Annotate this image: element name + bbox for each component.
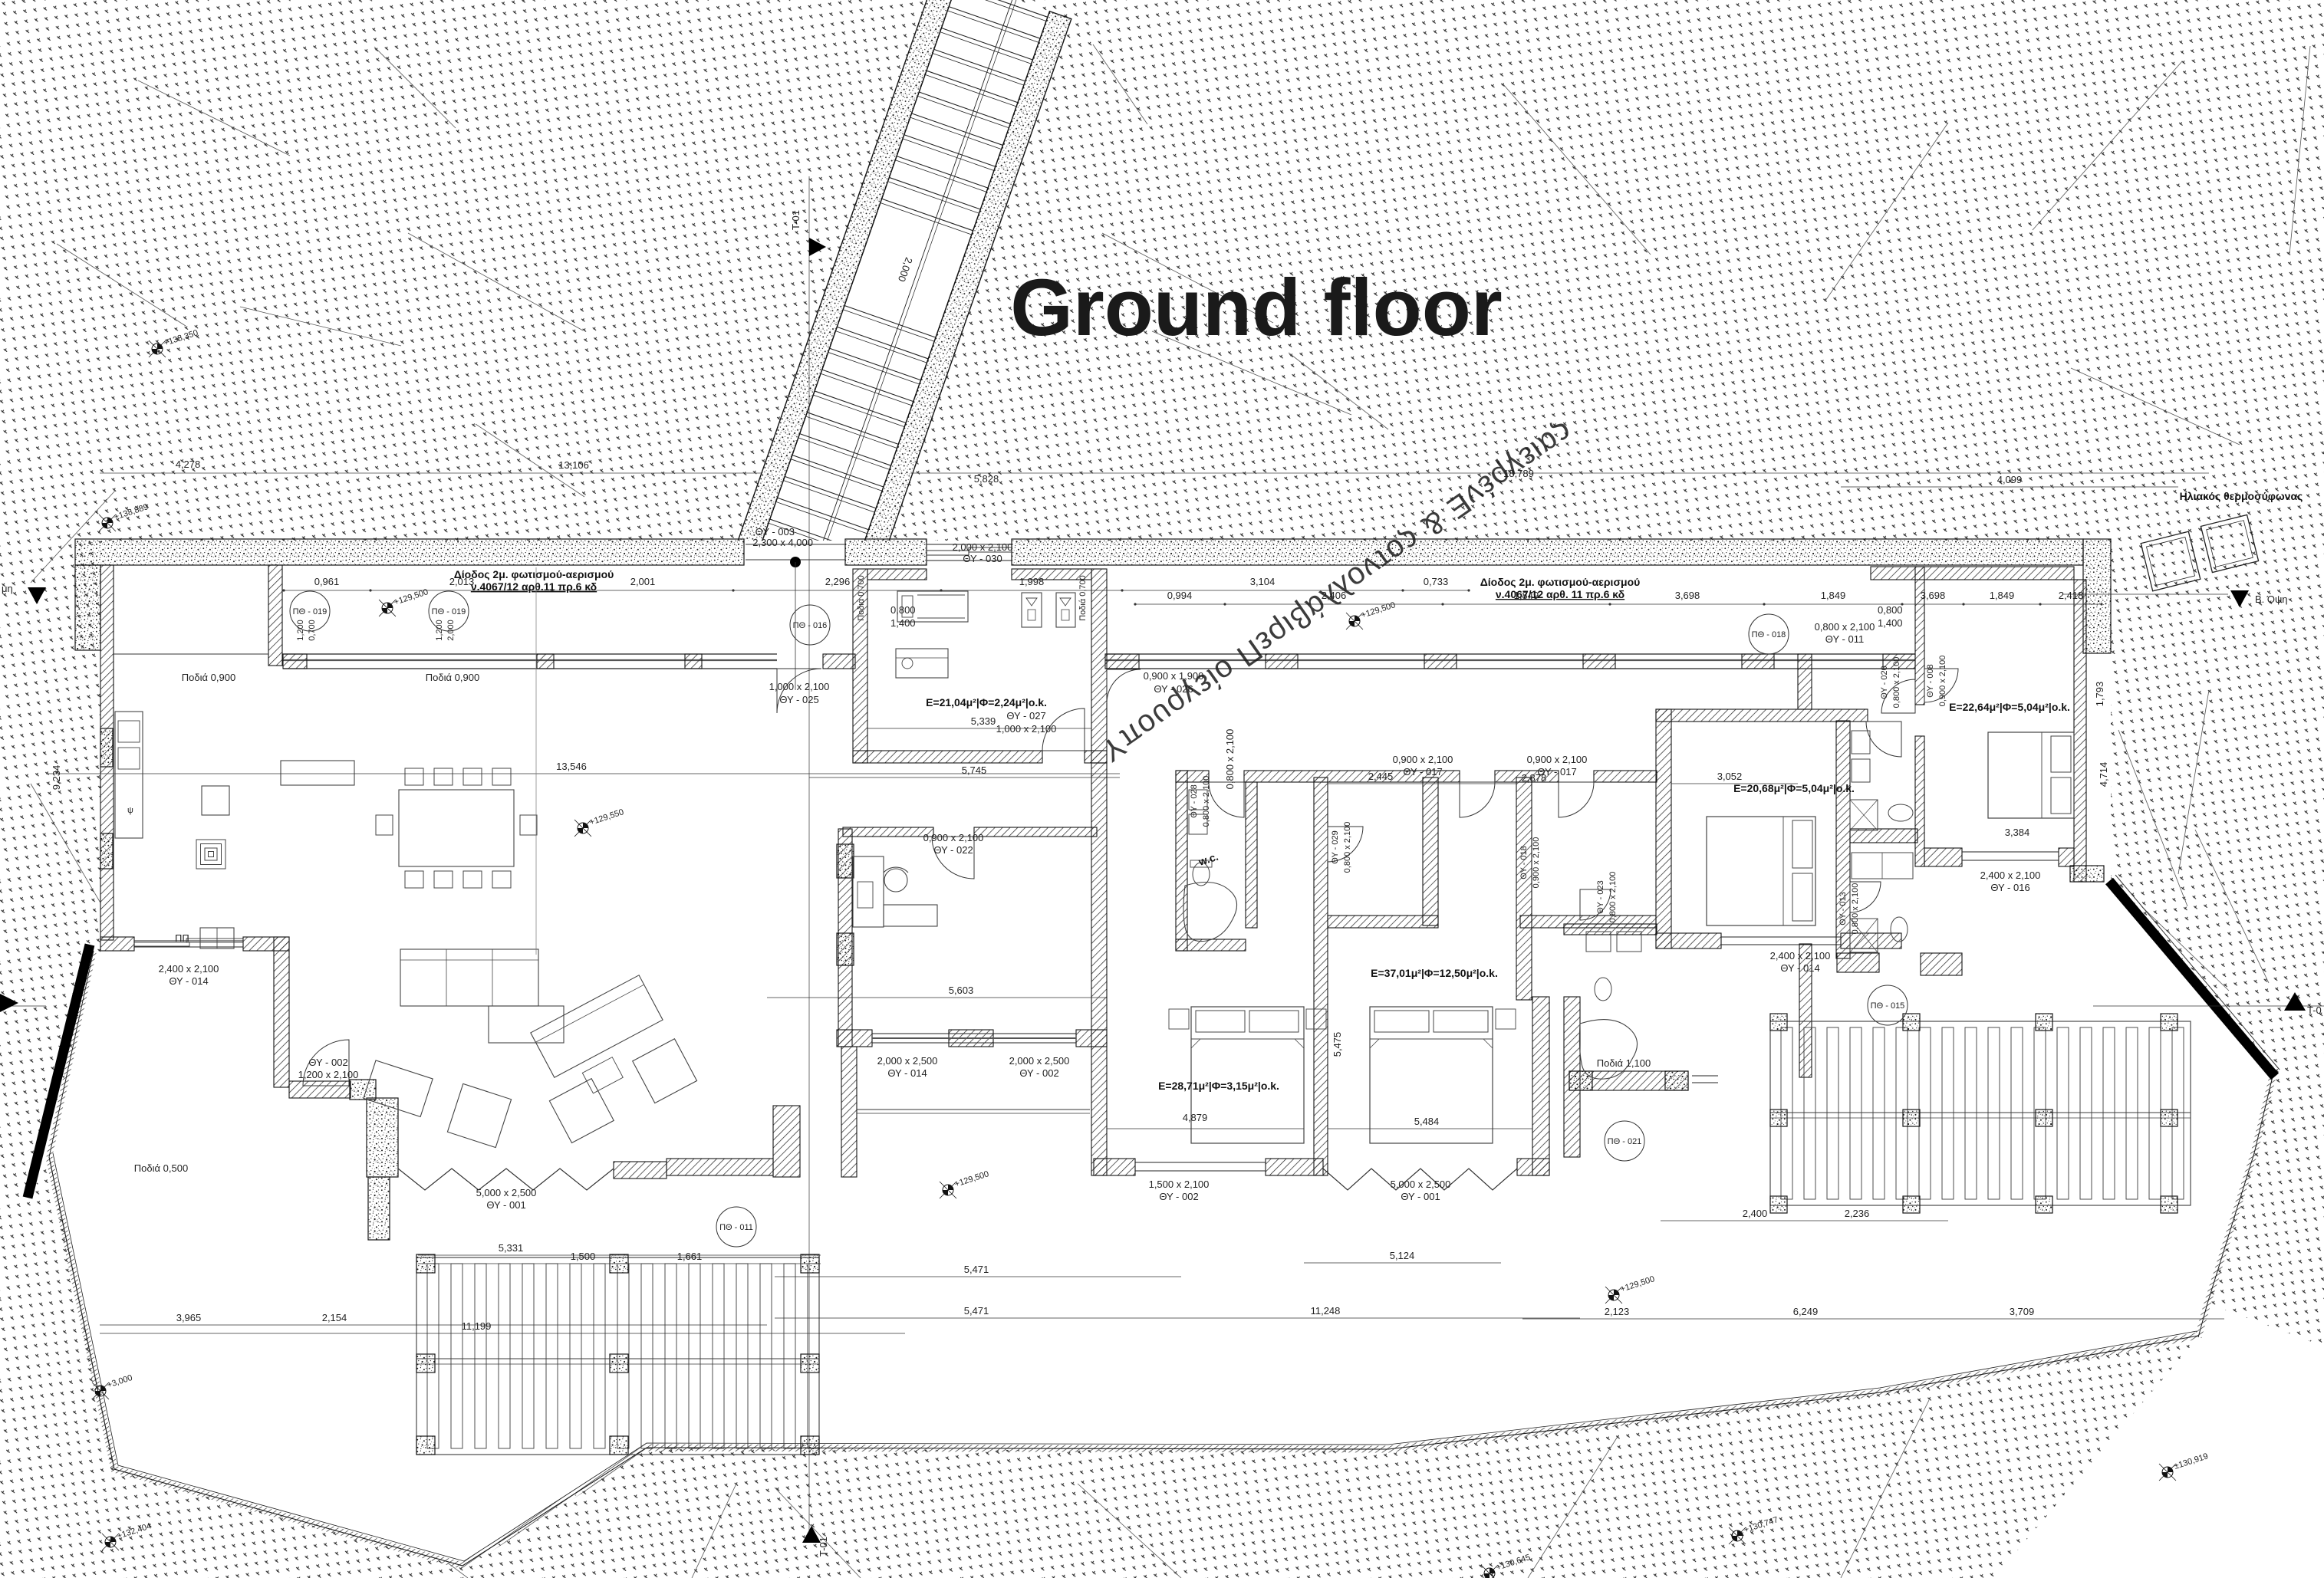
svg-text:ΠΘ - 016: ΠΘ - 016	[793, 621, 828, 630]
svg-text:Ποδιά 0,700: Ποδιά 0,700	[1078, 575, 1088, 621]
svg-text:0,900 x 2,100: 0,900 x 2,100	[1938, 656, 1947, 707]
svg-text:Β. Όψη: Β. Όψη	[2255, 593, 2287, 605]
svg-text:E=21,04μ²|Φ=2,24μ²|o.k.: E=21,04μ²|Φ=2,24μ²|o.k.	[926, 696, 1047, 708]
svg-text:5,124: 5,124	[1390, 1250, 1415, 1261]
svg-text:ν.4067/12 αρθ.11 πρ.6 κδ: ν.4067/12 αρθ.11 πρ.6 κδ	[471, 580, 597, 593]
svg-text:ΘΥ - 001: ΘΥ - 001	[486, 1199, 525, 1211]
svg-text:3,965: 3,965	[176, 1312, 202, 1323]
svg-text:Ποδιά 0,900: Ποδιά 0,900	[182, 672, 235, 683]
svg-text:Ground floor: Ground floor	[1010, 263, 1503, 353]
svg-text:ΘΥ - 028: ΘΥ - 028	[1190, 784, 1199, 817]
svg-text:2,400: 2,400	[1743, 1208, 1768, 1219]
svg-text:ΘΥ - 014: ΘΥ - 014	[887, 1067, 927, 1079]
svg-text:0,800 x 2,100: 0,800 x 2,100	[1608, 872, 1618, 923]
svg-text:11,248: 11,248	[1311, 1305, 1341, 1317]
svg-text:0,800: 0,800	[890, 604, 916, 616]
svg-text:Δίοδος 2μ. φωτισμού-αερισμού: Δίοδος 2μ. φωτισμού-αερισμού	[1480, 576, 1641, 588]
svg-text:ΘΥ - 008: ΘΥ - 008	[1926, 664, 1935, 697]
svg-text:4,099: 4,099	[1997, 474, 2023, 485]
svg-text:1,200 x 2,100: 1,200 x 2,100	[298, 1069, 359, 1080]
svg-text:1,849: 1,849	[1821, 590, 1846, 601]
svg-text:13,546: 13,546	[556, 761, 587, 772]
svg-text:9,234: 9,234	[51, 765, 62, 791]
svg-text:3,052: 3,052	[1717, 771, 1743, 782]
svg-text:5,484: 5,484	[1414, 1116, 1440, 1127]
svg-text:ΘΥ - 022: ΘΥ - 022	[933, 844, 973, 856]
svg-text:ΘΥ - 003: ΘΥ - 003	[755, 526, 795, 538]
svg-text:1,400: 1,400	[890, 617, 916, 629]
svg-text:0,800 x 2,100: 0,800 x 2,100	[1815, 621, 1875, 633]
svg-text:ΘΥ - 018: ΘΥ - 018	[1519, 846, 1529, 879]
svg-text:5,745: 5,745	[962, 764, 987, 776]
svg-text:2,418: 2,418	[2059, 590, 2084, 601]
svg-text:0,800: 0,800	[1878, 604, 1903, 616]
svg-text:2,400 x 2,100: 2,400 x 2,100	[159, 963, 219, 975]
svg-text:ΠΘ - 018: ΠΘ - 018	[1752, 630, 1786, 639]
svg-text:0,800 x 2,100: 0,800 x 2,100	[1343, 822, 1352, 873]
svg-text:ΠΘ - 019: ΠΘ - 019	[432, 607, 466, 616]
svg-text:ΘΥ - 020: ΘΥ - 020	[1880, 666, 1889, 699]
svg-text:3,698: 3,698	[1675, 590, 1700, 601]
svg-text:ΘΥ - 029: ΘΥ - 029	[1331, 830, 1340, 863]
svg-text:ΘΥ - 014: ΘΥ - 014	[169, 975, 208, 987]
svg-text:1,000 x 2,100: 1,000 x 2,100	[996, 723, 1057, 735]
svg-text:2,000 x 2,100: 2,000 x 2,100	[953, 541, 1013, 553]
svg-text:ΠΠ: ΠΠ	[175, 932, 189, 944]
svg-text:0,800 x 2,100: 0,800 x 2,100	[1224, 729, 1236, 790]
svg-text:Δίοδος 2μ. φωτισμού-αερισμού: Δίοδος 2μ. φωτισμού-αερισμού	[454, 568, 614, 580]
svg-text:T-0: T-0	[2307, 1004, 2322, 1016]
svg-text:ΠΘ - 011: ΠΘ - 011	[719, 1223, 753, 1232]
svg-text:0,900 x 2,100: 0,900 x 2,100	[1532, 837, 1541, 889]
svg-text:5,603: 5,603	[949, 985, 974, 996]
svg-text:2,001: 2,001	[630, 576, 656, 587]
svg-text:2,400 x 2,100: 2,400 x 2,100	[1770, 950, 1831, 962]
svg-text:1,500: 1,500	[571, 1251, 596, 1262]
svg-text:4,278: 4,278	[176, 459, 201, 470]
svg-text:ΠΘ - 021: ΠΘ - 021	[1608, 1137, 1642, 1146]
svg-text:5,828: 5,828	[974, 473, 999, 485]
svg-text:0,900 x 2,100: 0,900 x 2,100	[923, 832, 984, 843]
svg-text:5,471: 5,471	[964, 1264, 989, 1275]
svg-text:μη: μη	[2, 583, 13, 594]
svg-text:ΘΥ - 002: ΘΥ - 002	[308, 1057, 347, 1068]
svg-text:ΘΥ - 017: ΘΥ - 017	[1403, 766, 1442, 777]
svg-text:ΘΥ - 011: ΘΥ - 011	[1825, 633, 1864, 645]
svg-text:2,154: 2,154	[322, 1312, 347, 1323]
svg-text:ΘΥ - 002: ΘΥ - 002	[1019, 1067, 1058, 1079]
svg-text:1,661: 1,661	[677, 1251, 703, 1262]
svg-text:2,000 x 2,500: 2,000 x 2,500	[1009, 1055, 1070, 1067]
svg-text:1,500 x 2,100: 1,500 x 2,100	[1149, 1179, 1210, 1190]
svg-text:0,800 x 2,100: 0,800 x 2,100	[1851, 883, 1860, 935]
svg-text:ΘΥ - 030: ΘΥ - 030	[963, 553, 1002, 564]
svg-text:5,000 x 2,500: 5,000 x 2,500	[1391, 1179, 1451, 1190]
svg-text:ΘΥ - 002: ΘΥ - 002	[1159, 1191, 1198, 1202]
svg-text:ΘΥ - 025: ΘΥ - 025	[779, 694, 818, 705]
svg-text:Ηλιακός θερμοσύφωνας: Ηλιακός θερμοσύφωνας	[2180, 490, 2303, 502]
svg-text:3,384: 3,384	[2005, 827, 2030, 838]
svg-text:ΘΥ - 016: ΘΥ - 016	[1990, 882, 2029, 893]
svg-text:11,199: 11,199	[462, 1320, 492, 1332]
svg-text:Ποδιά 1,100: Ποδιά 1,100	[1597, 1057, 1651, 1069]
svg-text:4,714: 4,714	[2098, 762, 2109, 787]
svg-text:0,733: 0,733	[1424, 576, 1449, 587]
svg-text:2,400 x 2,100: 2,400 x 2,100	[1980, 870, 2041, 881]
svg-text:ΘΥ - 001: ΘΥ - 001	[1401, 1191, 1440, 1202]
svg-text:ΘΥ - 013: ΘΥ - 013	[1838, 892, 1848, 925]
svg-text:E=22,64μ²|Φ=5,04μ²|o.k.: E=22,64μ²|Φ=5,04μ²|o.k.	[1949, 701, 2070, 713]
svg-text:E=28,71μ²|Φ=3,15μ²|o.k.: E=28,71μ²|Φ=3,15μ²|o.k.	[1158, 1080, 1279, 1092]
svg-text:0,900 x 2,100: 0,900 x 2,100	[1393, 754, 1453, 765]
svg-text:5,475: 5,475	[1332, 1032, 1343, 1057]
svg-text:3,698: 3,698	[1921, 590, 1946, 601]
svg-text:2,236: 2,236	[1845, 1208, 1870, 1219]
svg-text:0,994: 0,994	[1167, 590, 1193, 601]
svg-text:ψ: ψ	[127, 806, 133, 815]
svg-text:ΠΘ - 019: ΠΘ - 019	[293, 607, 328, 616]
svg-text:T-01: T-01	[818, 1537, 829, 1557]
svg-text:E=37,01μ²|Φ=12,50μ²|o.k.: E=37,01μ²|Φ=12,50μ²|o.k.	[1371, 967, 1498, 979]
svg-text:5,000 x 2,500: 5,000 x 2,500	[476, 1187, 537, 1198]
svg-text:5,339: 5,339	[971, 715, 996, 727]
svg-text:2,296: 2,296	[825, 576, 851, 587]
svg-text:3,709: 3,709	[2010, 1306, 2035, 1317]
svg-text:1,000 x 2,100: 1,000 x 2,100	[769, 681, 830, 692]
svg-text:5,331: 5,331	[499, 1242, 524, 1254]
svg-text:2,300 x 4,000: 2,300 x 4,000	[752, 537, 813, 548]
svg-text:3,104: 3,104	[1250, 576, 1276, 587]
svg-text:Ποδιά 0,700: Ποδιά 0,700	[857, 575, 866, 621]
svg-text:ν.4067/12 αρθ. 11 πρ.6 κδ: ν.4067/12 αρθ. 11 πρ.6 κδ	[1496, 588, 1624, 600]
svg-text:0,961: 0,961	[314, 576, 340, 587]
svg-text:2,878: 2,878	[1522, 772, 1547, 784]
svg-text:Ποδιά 0,900: Ποδιά 0,900	[426, 672, 479, 683]
svg-text:1,849: 1,849	[1990, 590, 2015, 601]
svg-text:1,793: 1,793	[2094, 682, 2105, 707]
svg-text:0,800 x 2,100: 0,800 x 2,100	[1202, 776, 1211, 827]
svg-text:13,106: 13,106	[558, 459, 589, 471]
svg-text:T-01: T-01	[790, 210, 802, 230]
svg-text:ΘΥ - 014: ΘΥ - 014	[1780, 962, 1819, 974]
svg-text:0,800 x 2,100: 0,800 x 2,100	[1892, 657, 1901, 708]
svg-text:5,471: 5,471	[964, 1305, 989, 1317]
svg-text:E=20,68μ²|Φ=5,04μ²|o.k.: E=20,68μ²|Φ=5,04μ²|o.k.	[1733, 782, 1855, 794]
svg-text:2,000 x 2,500: 2,000 x 2,500	[877, 1055, 938, 1067]
svg-text:ΘΥ - 027: ΘΥ - 027	[1006, 710, 1045, 722]
svg-text:6,249: 6,249	[1793, 1306, 1819, 1317]
svg-text:Ποδιά 0,500: Ποδιά 0,500	[134, 1162, 188, 1174]
svg-text:ΘΥ - 023: ΘΥ - 023	[1596, 880, 1605, 913]
svg-text:0,900 x 2,100: 0,900 x 2,100	[1527, 754, 1588, 765]
svg-text:1,400: 1,400	[1878, 617, 1903, 629]
svg-text:2,123: 2,123	[1605, 1306, 1630, 1317]
svg-text:4,879: 4,879	[1183, 1112, 1208, 1123]
svg-text:2,445: 2,445	[1368, 771, 1394, 782]
svg-text:ΠΘ - 015: ΠΘ - 015	[1871, 1001, 1905, 1011]
svg-text:1,998: 1,998	[1019, 576, 1045, 587]
